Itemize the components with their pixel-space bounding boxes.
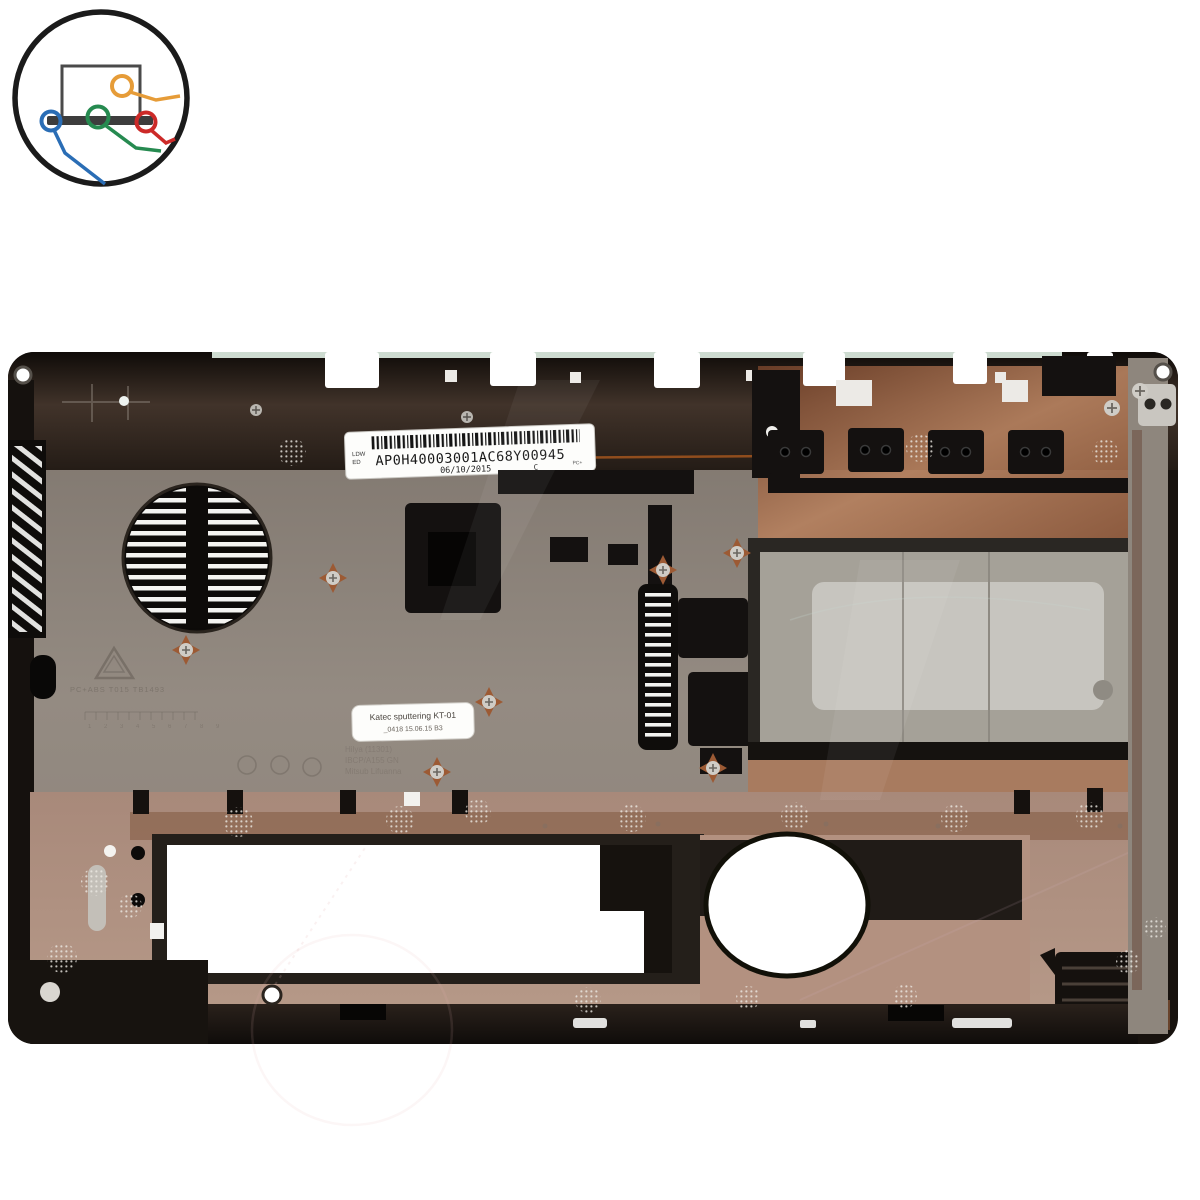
molded-material-text: PC+ABS T015 TB1493 (70, 685, 165, 694)
ladder-vent (638, 584, 678, 750)
top-left-led-hole (119, 396, 129, 406)
barcode-prefix-top: LDW (352, 452, 366, 458)
ridge-notch (404, 792, 420, 806)
barcode-prefix-bottom: ED (352, 460, 361, 466)
molded-ruler-digits: 1 2 3 4 5 6 7 8 9 (88, 724, 225, 730)
laptop-bottom-case: LDW ED AP0H40003001AC68Y00945 06/10/2015… (8, 351, 1178, 1125)
subwoofer-cutout (706, 834, 868, 976)
molded-line2: IBCP/A155 GN (345, 756, 399, 765)
store-logo (15, 12, 187, 184)
corner-screw-hole-right (1155, 364, 1171, 380)
molded-line3: Mitsub Lifuanna (345, 767, 402, 776)
process-label: Katec sputtering KT-01 _0418 15.06.15 B3 (352, 702, 475, 741)
product-photo: LDW ED AP0H40003001AC68Y00945 06/10/2015… (0, 0, 1200, 1200)
left-side-vent (8, 440, 46, 638)
barcode-corner-mark: PC+ (572, 460, 582, 466)
fan-vent (123, 484, 271, 632)
molded-line1: Hilya (11301) (345, 745, 392, 754)
corner-screw-hole-left (15, 367, 31, 383)
left-grip-slot (30, 655, 56, 699)
barcode-date-text: 06/10/2015 (440, 464, 492, 476)
